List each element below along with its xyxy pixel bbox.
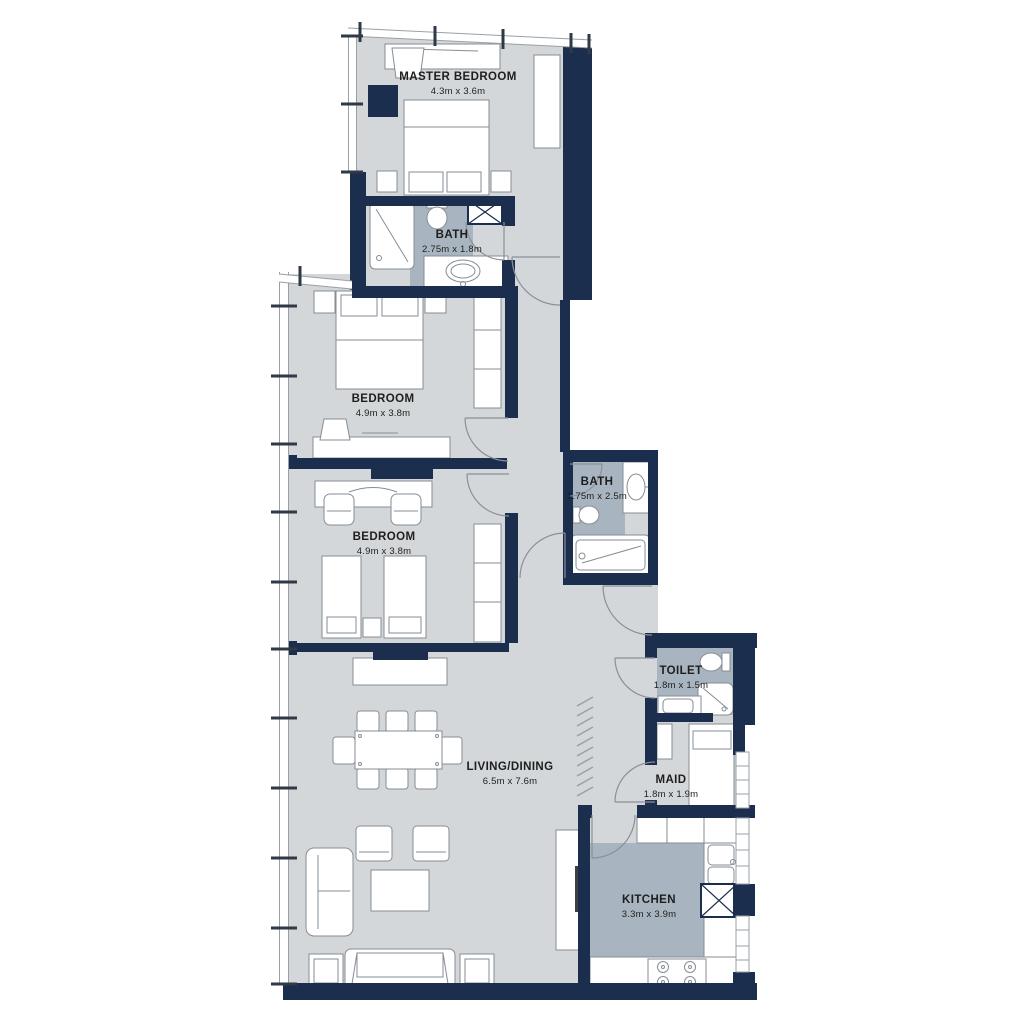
bed-pillow xyxy=(341,295,377,316)
nightstand xyxy=(377,171,397,192)
chair xyxy=(324,494,354,525)
kitchen-counter-top xyxy=(637,816,737,843)
wall-right-thick xyxy=(563,44,592,300)
wardrobe xyxy=(474,524,501,642)
wall-kitchen-left xyxy=(578,805,590,995)
armchair xyxy=(356,826,392,861)
wall-maid-left xyxy=(645,723,657,765)
room-dims: 4.9m x 3.8m xyxy=(357,546,411,557)
chair xyxy=(391,494,421,525)
armchair xyxy=(413,826,449,861)
wall-divider-1-block xyxy=(371,466,433,479)
wall-maid-right-upper xyxy=(733,715,745,755)
master-bed-pillow-left xyxy=(409,172,443,192)
bed-pillow xyxy=(382,295,418,316)
wall-masterbath-left xyxy=(350,172,366,290)
window-kitchen-1 xyxy=(736,818,749,884)
wall-corridor-right xyxy=(560,300,570,452)
window-kitchen-2 xyxy=(736,916,749,972)
dining-chair xyxy=(440,737,462,764)
room-dims: 1.75m x 2.5m xyxy=(567,491,627,502)
sideboard xyxy=(353,658,447,685)
dining-chair xyxy=(415,768,437,789)
wall-bath2-top xyxy=(563,450,658,462)
twin-bed-pillow xyxy=(389,617,421,633)
window-maid xyxy=(736,752,749,808)
desk-chair xyxy=(320,419,350,440)
dining-chair xyxy=(386,768,408,789)
wall-bottom-living xyxy=(283,983,583,1000)
column-master xyxy=(368,85,398,117)
room-name: BATH xyxy=(581,476,614,488)
room-name: TOILET xyxy=(659,665,702,677)
glazed-wall-master-left xyxy=(348,32,357,172)
vanity-counter xyxy=(424,256,508,288)
room-name: BEDROOM xyxy=(353,531,416,543)
toilet-tank xyxy=(722,653,730,671)
floor-plan-canvas: MASTER BEDROOM 4.3m x 3.6m BATH 2.75m x … xyxy=(0,0,1024,1024)
room-dims: 3.3m x 3.9m xyxy=(622,909,676,920)
wall-toilet-left-upper xyxy=(645,633,657,658)
wall-kitchen-pier xyxy=(733,884,755,916)
wall-toilet-right xyxy=(733,640,755,725)
room-dims: 1.8m x 1.9m xyxy=(644,789,698,800)
master-wardrobe xyxy=(534,55,560,148)
sofa-cushions xyxy=(357,953,443,977)
wall-bedroom1-top xyxy=(352,286,518,298)
wall-bottom-kitchen xyxy=(578,983,757,1000)
dining-table xyxy=(355,731,442,769)
dining-chair xyxy=(357,711,379,732)
maid-bed-pillow xyxy=(693,731,731,749)
wardrobe xyxy=(474,291,501,408)
coffee-table xyxy=(371,870,429,911)
side-table-inner xyxy=(314,959,338,983)
wall-bath2-bottom xyxy=(563,573,658,585)
dining-chair xyxy=(386,711,408,732)
room-name: BEDROOM xyxy=(352,393,415,405)
toilet-bowl xyxy=(579,506,599,524)
wall-toilet-left-lower xyxy=(645,698,657,723)
floor-plan: MASTER BEDROOM 4.3m x 3.6m BATH 2.75m x … xyxy=(0,0,1024,1024)
room-dims: 4.3m x 3.6m xyxy=(431,86,485,97)
room-dims: 2.75m x 1.8m xyxy=(422,244,482,255)
wall-kitchen-corner xyxy=(733,972,755,985)
room-name: MASTER BEDROOM xyxy=(399,71,516,83)
twin-bed-pillow xyxy=(327,617,356,633)
dining-chair xyxy=(415,711,437,732)
toilet-bowl xyxy=(700,653,722,671)
glazed-wall-left xyxy=(279,272,289,984)
sofa-side xyxy=(306,848,353,936)
maid-closet xyxy=(657,724,672,759)
toilet-bowl xyxy=(427,207,447,229)
nightstand xyxy=(314,291,335,313)
wall-bedroom1-right xyxy=(505,298,518,418)
side-table-inner xyxy=(465,959,489,983)
wall-masterbath-top xyxy=(366,196,502,206)
master-bed-pillow-right xyxy=(447,172,481,192)
wall-bath2-right xyxy=(648,450,658,585)
nightstand xyxy=(491,171,511,192)
wall-masterbath-corridor-a xyxy=(502,196,515,226)
wall-divider-2-block xyxy=(373,643,428,660)
dining-chair xyxy=(333,737,355,764)
sink-basin xyxy=(708,867,734,884)
room-name: MAID xyxy=(656,774,687,786)
room-dims: 6.5m x 7.6m xyxy=(483,776,537,787)
room-name: BATH xyxy=(436,229,469,241)
room-name: KITCHEN xyxy=(622,894,676,906)
room-dims: 4.9m x 3.8m xyxy=(356,408,410,419)
room-name: LIVING/DINING xyxy=(467,761,554,773)
wall-bedroom2-right xyxy=(505,513,518,643)
dining-chair xyxy=(357,768,379,789)
room-dims: 1.8m x 1.5m xyxy=(654,680,708,691)
nightstand xyxy=(363,618,381,637)
